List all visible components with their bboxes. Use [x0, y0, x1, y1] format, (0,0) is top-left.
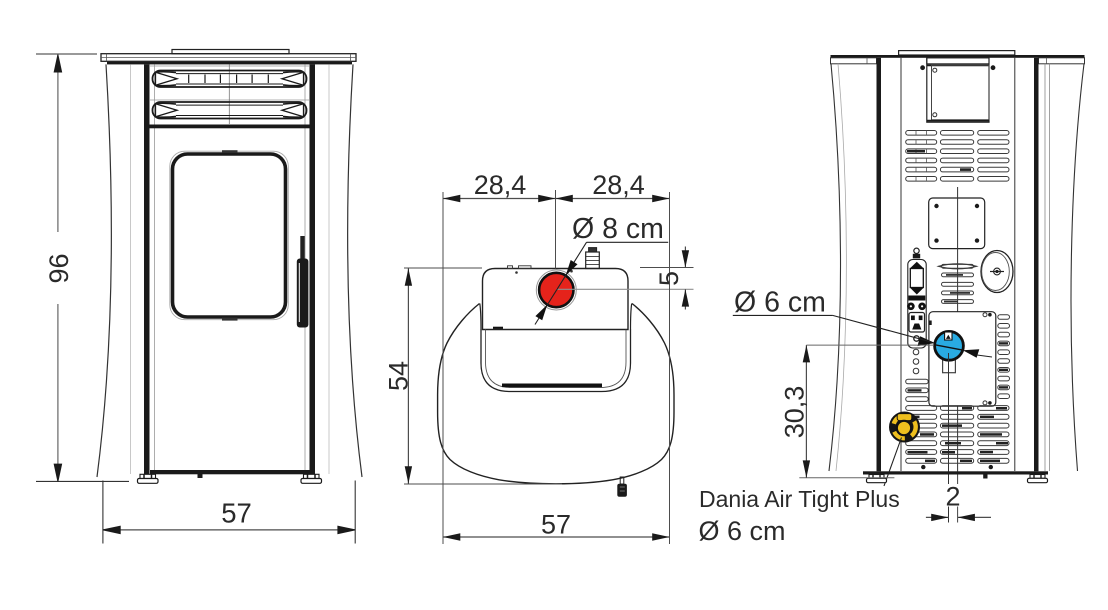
svg-text:Ø 8 cm: Ø 8 cm — [572, 213, 664, 245]
svg-text:28,4: 28,4 — [474, 170, 527, 200]
svg-text:5: 5 — [654, 271, 684, 286]
svg-text:Dania Air Tight Plus: Dania Air Tight Plus — [699, 486, 900, 512]
svg-text:Ø 6 cm: Ø 6 cm — [699, 516, 786, 546]
svg-text:57: 57 — [221, 498, 252, 529]
svg-text:2: 2 — [945, 481, 960, 511]
svg-text:28,4: 28,4 — [592, 170, 645, 200]
svg-text:30,3: 30,3 — [780, 386, 810, 439]
svg-text:Ø 6 cm: Ø 6 cm — [734, 287, 826, 319]
svg-text:54: 54 — [384, 361, 414, 391]
svg-text:96: 96 — [44, 253, 74, 283]
svg-text:57: 57 — [541, 510, 571, 540]
